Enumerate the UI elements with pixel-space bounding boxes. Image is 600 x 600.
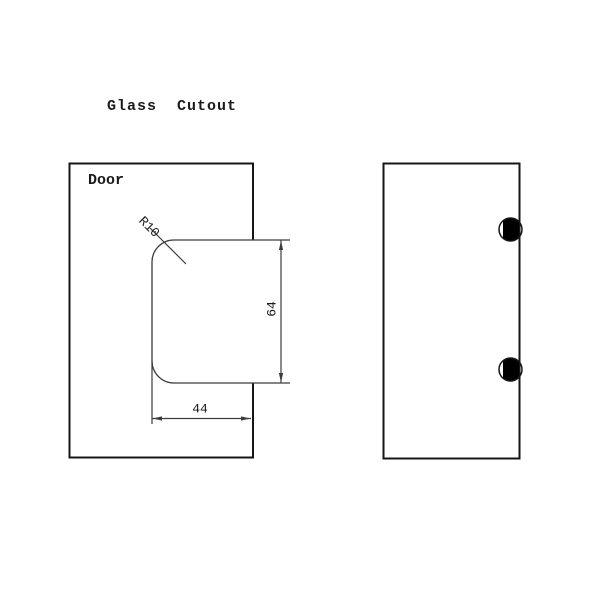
drawing-title: Glass Cutout	[107, 99, 237, 114]
width-dim-arrow-right	[241, 416, 251, 420]
height-dim-arrow-down	[279, 373, 283, 383]
width-dim-arrow-left	[153, 416, 163, 420]
drawing-svg	[0, 0, 600, 600]
door-outline	[70, 164, 254, 458]
dimension-cutout-height: 64	[266, 301, 279, 317]
dimension-cutout-width: 44	[192, 403, 208, 416]
door-label: Door	[88, 173, 124, 188]
side-view-outline	[384, 164, 520, 459]
height-dim-arrow-up	[279, 241, 283, 251]
technical-drawing-canvas: Glass Cutout Door R10 64 44	[0, 0, 600, 600]
